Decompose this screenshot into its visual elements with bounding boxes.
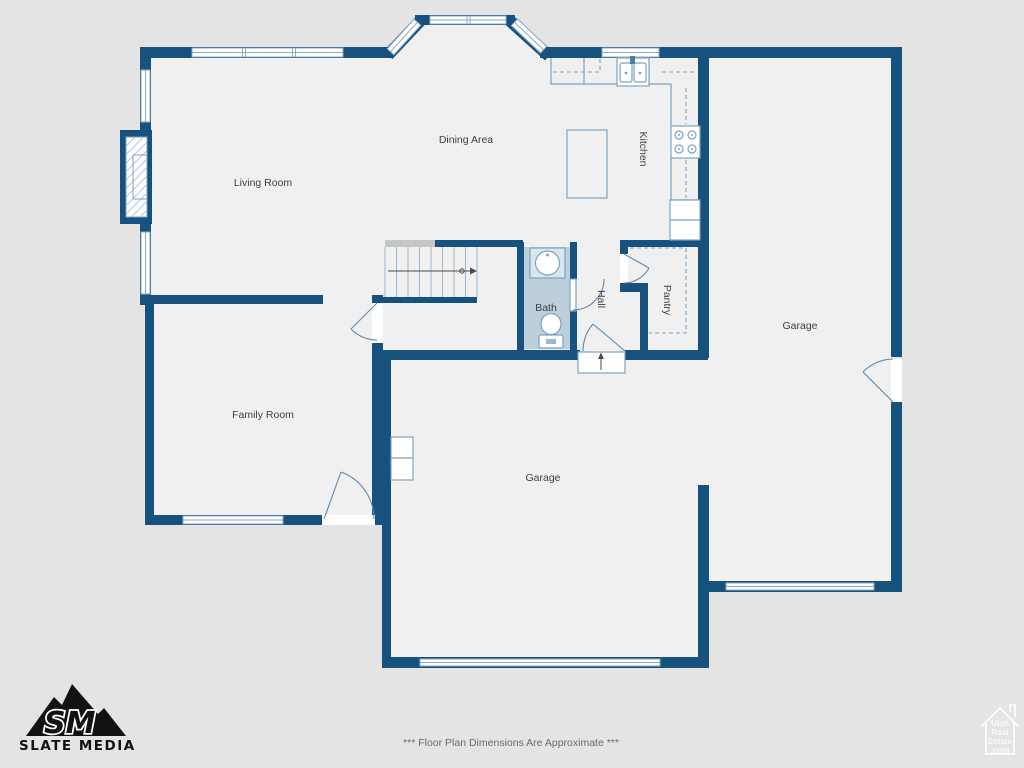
wall-right-garage-east-lower xyxy=(891,402,902,592)
kitchen-label: Kitchen xyxy=(637,131,649,166)
pantry-label: Pantry xyxy=(661,285,673,316)
dining-table xyxy=(567,130,607,198)
toilet xyxy=(539,314,563,349)
wall-pantry-west-stub xyxy=(620,240,628,254)
wall-stairs-south xyxy=(378,297,477,303)
stove xyxy=(671,126,700,158)
wall-stairs-north xyxy=(435,240,523,247)
living-room-north-window xyxy=(192,48,343,57)
wall-family-east xyxy=(372,343,383,525)
slate-media-logo: SM SLATE MEDIA xyxy=(19,684,136,754)
wall-bath-east-lower xyxy=(570,310,577,355)
stair-railing xyxy=(385,240,435,247)
kitchen-sink xyxy=(617,56,649,86)
wall-bath-west xyxy=(517,242,524,355)
watermark-house-chimney-icon xyxy=(1010,705,1015,717)
wall-bath-east-upper xyxy=(570,242,577,279)
living-room-label: Living Room xyxy=(234,177,293,189)
family-room-label: Family Room xyxy=(232,409,294,421)
bath-sink xyxy=(530,248,565,278)
living-room-west-window-upper xyxy=(141,70,150,122)
floor-plan-page: Living Room Dining Area Kitchen Bath Hal… xyxy=(0,0,1024,768)
bath-label: Bath xyxy=(535,302,557,314)
hall-label: Hall xyxy=(595,290,607,308)
main-garage-floor xyxy=(385,355,705,663)
wall-pantry-west xyxy=(640,283,648,355)
wall-garage-west xyxy=(382,352,391,668)
wall-garage-divider xyxy=(698,485,709,668)
right-garage-label: Garage xyxy=(782,320,817,332)
kitchen-window xyxy=(602,48,659,57)
wall-hall-south-right xyxy=(625,350,708,360)
wall-right-garage-north xyxy=(708,47,902,58)
watermark-line1: Utah xyxy=(991,719,1009,728)
watermark-line3: Estate xyxy=(988,737,1013,746)
watermark-line2: Real xyxy=(992,728,1009,737)
water-heater xyxy=(391,437,413,480)
wall-pantry-north xyxy=(620,240,708,247)
wall-hall-south-left xyxy=(375,350,580,360)
wall-living-family-divider xyxy=(145,295,323,304)
logo-name: SLATE MEDIA xyxy=(19,738,136,754)
floor-plan-canvas: Living Room Dining Area Kitchen Bath Hal… xyxy=(0,0,1024,768)
living-room-west-window-lower xyxy=(141,232,150,294)
bay-center-window xyxy=(430,16,506,24)
family-room-window xyxy=(183,516,283,524)
right-garage-door-band xyxy=(726,583,874,590)
wall-family-west xyxy=(145,295,154,525)
disclaimer-text: *** Floor Plan Dimensions Are Approximat… xyxy=(403,737,619,749)
fireplace xyxy=(120,130,152,224)
utah-real-estate-watermark: Utah Real Estate .com xyxy=(981,705,1019,755)
refrigerator xyxy=(670,200,700,240)
main-garage-label: Garage xyxy=(525,472,560,484)
watermark-line4: .com xyxy=(991,746,1010,755)
wall-right-garage-east-upper xyxy=(891,47,902,357)
dining-area-label: Dining Area xyxy=(439,134,493,146)
entry-step xyxy=(578,352,625,373)
logo-monogram: SM xyxy=(44,706,96,741)
main-garage-door-band xyxy=(420,659,660,666)
